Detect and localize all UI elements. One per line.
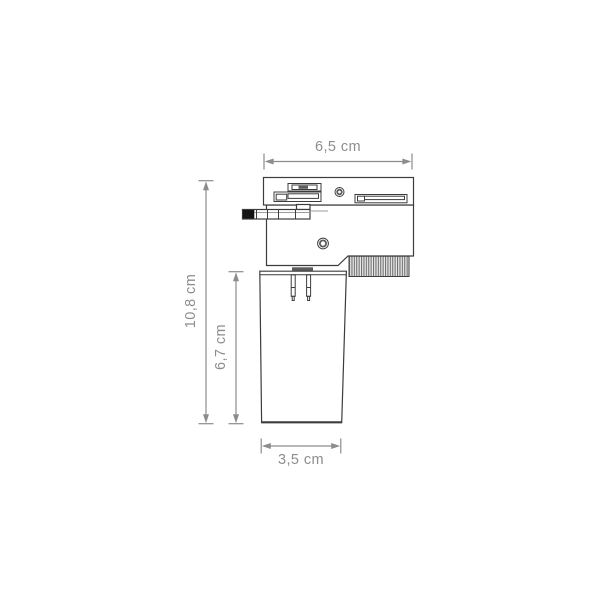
arrow-down-icon (203, 414, 209, 423)
dimension-label-total-height: 10,8 cm (183, 274, 199, 328)
dimension-label-bottom-width: 3,5 cm (278, 452, 324, 468)
arrow-down-icon (233, 414, 239, 423)
heatsink-ribs (349, 256, 409, 276)
dim-lamp-height (229, 272, 244, 424)
dim-top-width (264, 154, 412, 170)
adapter-housing (243, 178, 414, 277)
cylinder-connector (292, 267, 313, 271)
lever-tip (243, 210, 255, 219)
dim-total-height (199, 181, 214, 424)
arrow-right-icon (402, 159, 411, 165)
arrow-up-icon (203, 181, 209, 190)
dimension-label-top-width: 6,5 cm (315, 139, 361, 155)
arrow-left-icon (265, 159, 274, 165)
arrow-left-icon (262, 443, 271, 449)
dimension-label-lamp-height: 6,7 cm (213, 324, 229, 370)
arrow-right-icon (331, 443, 340, 449)
dimension-drawing-canvas: 6,5 cm 10,8 cm 6,7 cm 3,5 cm (0, 0, 600, 600)
arrow-up-icon (233, 272, 239, 281)
track-adapter-drawing (0, 0, 600, 600)
lamp-cylinder (260, 267, 347, 422)
adapter-top-strip (264, 178, 414, 206)
